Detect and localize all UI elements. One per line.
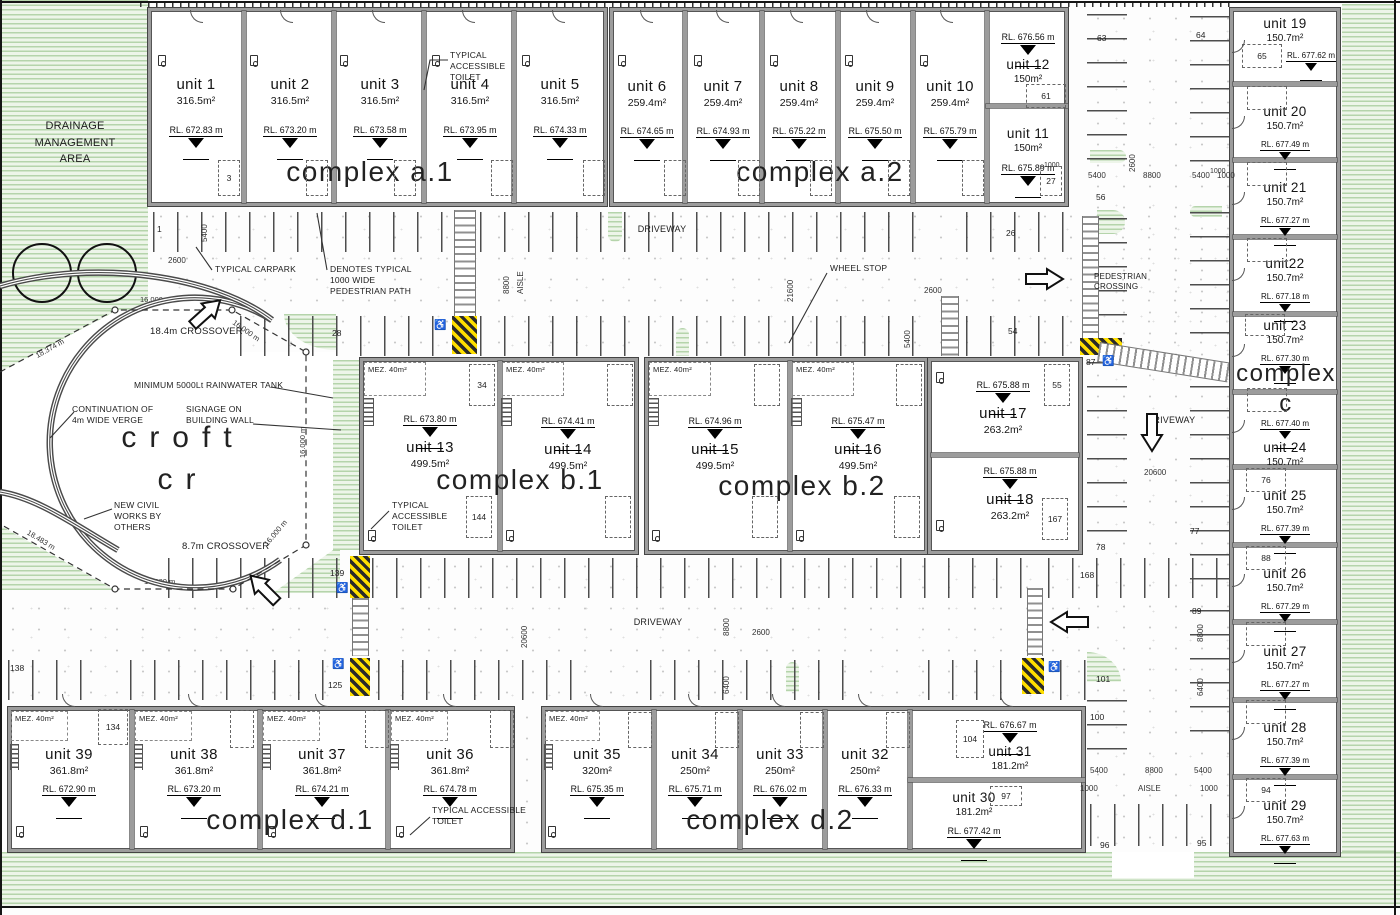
unit-38: unit 38361.8m²RL. 673.20 m [139,746,249,807]
unit-rl: RL. 674.65 m [610,122,684,149]
loading-box: 55 [1044,364,1070,406]
bay-number: 56 [1096,192,1105,202]
loading-box [1247,162,1287,186]
bay-number: 104 [963,734,977,744]
carpark-stalls [1087,14,1127,166]
loading-box [664,160,686,196]
level-marker-icon [1002,479,1018,489]
dim: 1000 [1080,784,1098,793]
bay-number: 134 [106,722,120,732]
unit-rl: RL. 674.96 m [657,412,773,439]
unit-area: 150.7m² [1237,335,1333,348]
unit-name: unit 19 [1237,16,1333,33]
stairs-icon [791,398,802,426]
loading-box [1247,388,1287,412]
unit-rl: RL. 675.35 m [542,780,652,807]
carpark-stalls [650,660,845,700]
toilet-note: TYPICAL ACCESSIBLE TOILET [392,500,478,533]
level-marker-icon [966,839,982,849]
unit-8: unit 8259.4m²RL. 675.22 m [762,78,836,149]
dim: 5400 [200,224,209,242]
level-marker-icon [1020,45,1036,55]
unit-7: unit 7259.4m²RL. 674.93 m [686,78,760,149]
toilet-icon [506,530,514,541]
unit-area: 150.7m² [1237,505,1333,518]
loading-box [886,712,910,748]
unit-area: 250m² [816,765,914,778]
loading-box [394,160,416,196]
loading-box [738,160,760,196]
dim: 5400 [1090,766,1108,775]
unit-10: unit 10259.4m²RL. 675.79 m [913,78,987,149]
dim: 2600 [168,256,186,265]
loading-box [1245,314,1285,336]
loading-box [230,710,254,748]
unit-rl: RL. 676.02 m [731,780,829,807]
unit-rl: RL. 677.27 m [1237,675,1333,700]
dim: 6400 [722,676,731,694]
unit-15: RL. 674.96 munit 15499.5m² [657,410,773,473]
complex-d1-title: complex d.1 [160,804,420,836]
gap-d1-d2 [514,707,542,852]
level-marker-icon [715,139,731,149]
unit-28: unit 28150.7m²RL. 677.39 m [1237,720,1333,776]
unit-area: 361.8m² [395,765,505,778]
mezzanine-label: MEZ. 40m² [267,714,306,723]
unit-area: 259.4m² [610,97,684,110]
unit-area: 361.8m² [267,765,377,778]
unit-name: unit 8 [762,78,836,97]
bottom-notch [1112,852,1194,878]
mezzanine-box: MEZ. 40m² [11,711,68,741]
unit-area: 259.4m² [838,97,912,110]
unit-3: unit 3316.5m²RL. 673.58 m [335,76,425,148]
loading-box [605,496,631,538]
unit-rl: RL. 673.95 m [425,121,515,148]
loading-box [628,712,652,748]
mezzanine-box: MEZ. 40m² [545,711,600,741]
carpark-stalls [612,558,1024,598]
dim: 8800 [722,618,731,636]
bay-number: 96 [1100,840,1109,850]
carpark-stalls [168,558,343,598]
loading-box: 88 [1246,546,1286,570]
level-marker-icon [707,429,723,439]
unit-13: RL. 673.80 munit 13499.5m² [372,408,488,471]
unit-rl: RL. 673.58 m [335,121,425,148]
carpark-stalls [966,316,1076,356]
unit-34: unit 34250m²RL. 675.71 m [646,746,744,807]
unit-35: unit 35320m²RL. 675.35 m [542,746,652,807]
unit-27: unit 27150.7m²RL. 677.27 m [1237,644,1333,700]
dim: 8800 [502,276,511,294]
bay-number: 61 [1041,91,1050,101]
dim: 6400 [1196,678,1205,696]
loading-box [1246,622,1286,646]
mezzanine-box: MEZ. 40m² [364,362,426,396]
pedestrian-crossing-label: PEDESTRIAN CROSSING [1094,272,1156,293]
mezzanine-box: MEZ. 40m² [502,362,564,396]
loading-box [962,160,984,196]
unit-area: 250m² [646,765,744,778]
toilet-icon [548,826,556,837]
unit-area: 150.7m² [1237,661,1333,674]
bay-number: 55 [1052,380,1061,390]
level-marker-icon [791,139,807,149]
wall [130,710,134,849]
stairs-icon [390,744,399,770]
unit-area: 259.4m² [762,97,836,110]
toilet-icon [618,55,626,66]
unit-6: unit 6259.4m²RL. 674.65 m [610,78,684,149]
driveway-label: DRIVEWAY [612,224,712,236]
level-marker-icon [1279,536,1291,544]
unit-name: unit 35 [542,746,652,765]
level-marker-icon [1279,228,1291,236]
wall [931,453,1079,457]
level-marker-icon [282,138,298,148]
civil-note: NEW CIVIL WORKS BY OTHERS [114,500,194,533]
unit-rl: RL. 674.33 m [515,121,605,148]
unit-name: unit 32 [816,746,914,765]
loading-box [1247,86,1287,110]
mezzanine-label: MEZ. 40m² [368,365,407,374]
bay-number: 54 [1008,326,1017,336]
dim: 1000 [1210,168,1226,175]
toilet-icon [432,55,440,66]
unit-19-rl: RL. 677.62 m [1282,44,1340,71]
loading-box [490,710,514,748]
unit-name: unit 6 [610,78,684,97]
dim: 16.000 m [298,427,307,458]
hazard-hatch [350,556,370,598]
unit-16: RL. 675.47 munit 16499.5m² [800,410,916,473]
unit-area: 150.7m² [1237,197,1333,210]
unit-rl: RL. 675.71 m [646,780,744,807]
unit-area: 150.7m² [1237,273,1333,286]
complex-d2-title: complex d.2 [640,804,900,836]
hazard-hatch [350,658,370,696]
wheel-stop-label: WHEEL STOP [830,263,887,274]
unit-12: RL. 676.56 munit 12150m² [990,26,1066,86]
unit-1: unit 1316.5m²RL. 672.83 m [151,76,241,148]
verge-strip [333,360,360,550]
unit-25: unit 25150.7m²RL. 677.39 m [1237,488,1333,544]
bay-number: 26 [1006,228,1015,238]
carpark-note: TYPICAL CARPARK [215,264,296,275]
bay-number: 28 [332,328,341,338]
mezzanine-label: MEZ. 40m² [395,714,434,723]
unit-name: unit 33 [731,746,829,765]
unit-2: unit 2316.5m²RL. 673.20 m [245,76,335,148]
loading-box [752,496,778,538]
unit-name: unit 10 [913,78,987,97]
dim: 2600 [1128,154,1137,172]
stairs-icon [648,398,659,426]
unit-area: 250m² [731,765,829,778]
level-marker-icon [1279,152,1291,160]
carpark-stalls [1190,212,1230,338]
mezzanine-box: MEZ. 40m² [792,362,854,396]
stairs-icon [134,744,143,770]
unit-39: unit 39361.8m²RL. 672.90 m [14,746,124,807]
bay-number: 87 [1086,357,1095,367]
unit-rl: RL. 674.21 m [267,780,377,807]
bay-number: 76 [1261,475,1270,485]
boundary-bottom [0,906,1400,908]
toilet-icon [770,55,778,66]
unit-rl: RL. 672.90 m [14,780,124,807]
level-marker-icon [422,427,438,437]
unit-19: unit 19150.7m² [1237,16,1333,45]
loading-box: 27 [1040,166,1062,196]
level-marker-icon [462,138,478,148]
loading-box: 76 [1246,468,1286,492]
dim: 20600 [1144,468,1166,477]
unit-rl: RL. 675.50 m [838,122,912,149]
bay-number: 77 [1190,526,1199,536]
unit-36: unit 36361.8m²RL. 674.78 m [395,746,505,807]
unit-22: unit22150.7m²RL. 677.18 m [1237,256,1333,312]
accessible-parking-icon: ♿ [332,660,344,670]
unit-name: unit 3 [335,76,425,95]
unit-name: unit 11 [990,126,1066,143]
mezzanine-box: MEZ. 40m² [263,711,320,741]
level-marker-icon [1002,733,1018,743]
unit-area: 361.8m² [139,765,249,778]
bay-number: 63 [1097,33,1106,43]
toilet-icon [268,826,276,837]
dim: 8800 [1143,171,1161,180]
unit-name: unit 36 [395,746,505,765]
pedestrian-crossing [941,296,959,356]
toilet-icon [140,826,148,837]
dim: 2600 [752,628,770,637]
level-marker-icon [1279,768,1291,776]
unit-name: unit 37 [267,746,377,765]
pedestrian-crossing [454,210,476,316]
unit-name: unit 39 [14,746,124,765]
complex-b2-title: complex b.2 [672,470,932,502]
carpark-stalls [1090,804,1230,846]
unit-area: 150.7m² [1237,583,1333,596]
unit-area: 150.7m² [1237,815,1333,828]
dim: 8800 [1196,624,1205,642]
dim: 21600 [786,280,795,302]
dim: 8800 [1145,766,1163,775]
dim: 5400 [903,330,912,348]
accessible-parking-icon: ♿ [336,584,348,594]
level-marker-icon [589,797,605,807]
bay-number: 88 [1261,553,1270,563]
bay-number: 139 [330,568,344,578]
toilet-note: TYPICAL ACCESSIBLE TOILET [432,805,536,827]
dim: 5400 [1194,766,1212,775]
level-marker-icon [552,138,568,148]
bay-number: 89 [1192,606,1201,616]
pedestrian-crossing [352,598,369,656]
dim: AISLE [1138,784,1161,793]
unit-29: unit 29150.7m²RL. 677.63 m [1237,798,1333,854]
unit-rl: RL. 675.88 m [952,462,1068,489]
unit-rl: RL. 677.63 m [1237,829,1333,854]
crossover-label: 18.4m CROSSOVER [150,326,243,338]
path-note: DENOTES TYPICAL 1000 WIDE PEDESTRIAN PAT… [330,264,428,297]
loading-box [888,160,910,196]
carpark-stalls [966,212,1076,252]
rainwater-tank-circle [77,243,137,303]
drainage-label: DRAINAGE MANAGEMENT AREA [20,118,130,168]
toilet-icon [368,530,376,541]
unit-rl: RL. 676.33 m [816,780,914,807]
dim: 20600 [520,626,529,648]
unit-name: unit 1 [151,76,241,95]
hazard-hatch [1022,658,1044,694]
unit-area: 316.5m² [425,95,515,108]
toilet-icon [250,55,258,66]
unit-rl: RL. 677.40 m [1237,414,1333,439]
level-marker-icon [942,139,958,149]
unit-21: unit 21150.7m²RL. 677.27 m [1237,180,1333,236]
unit-rl: RL. 673.80 m [372,410,488,437]
bay-number: 95 [1197,838,1206,848]
verge-strip-right [1342,4,1396,908]
unit-20: unit 20150.7m²RL. 677.49 m [1237,104,1333,160]
stairs-icon [363,398,374,426]
complex-a1-title: complex a.1 [240,156,500,188]
unit-area: 320m² [542,765,652,778]
unit-rl: RL. 677.39 m [1237,751,1333,776]
unit-rl: RL. 677.49 m [1237,135,1333,160]
dim: AISLE [516,271,525,294]
level-marker-icon [1279,846,1291,854]
unit-rl: RL. 672.83 m [151,121,241,148]
hazard-hatch [452,316,477,354]
bay-number: 138 [10,663,24,673]
unit-32: unit 32250m²RL. 676.33 m [816,746,914,807]
rainwater-note: MINIMUM 5000Lt RAINWATER TANK [134,380,283,391]
carpark-stalls [378,660,593,700]
unit-area: 361.8m² [14,765,124,778]
toilet-icon [920,55,928,66]
level-marker-icon [560,429,576,439]
unit-name: unit 7 [686,78,760,97]
carpark-stalls [1087,700,1127,758]
road-name: cr [128,460,238,499]
dim: 5400 [1088,171,1106,180]
road-name: croft [118,418,248,457]
mezzanine-label: MEZ. 40m² [506,365,545,374]
stairs-icon [544,744,553,770]
toilet-icon [16,826,24,837]
loading-box: 3 [218,160,240,196]
unit-24: RL. 677.40 munit 24150.7m² [1237,412,1333,469]
loading-box: 104 [956,720,984,758]
stairs-icon [10,744,19,770]
unit-rl: RL. 673.20 m [245,121,335,148]
unit-area: 316.5m² [335,95,425,108]
bay-number: 101 [1096,674,1110,684]
bay-number: 168 [1080,570,1094,580]
dim: 5400 [1192,171,1210,180]
unit-rl: RL. 674.78 m [395,780,505,807]
complex-b1-title: complex b.1 [390,464,650,496]
carpark-stalls [240,316,450,356]
level-marker-icon [188,138,204,148]
accessible-parking-icon: ♿ [1048,663,1060,673]
toilet-icon [694,55,702,66]
mezzanine-label: MEZ. 40m² [549,714,588,723]
bay-number: 3 [227,173,232,183]
mezzanine-label: MEZ. 40m² [139,714,178,723]
loading-box [583,160,605,196]
toilet-icon [936,520,944,531]
pedestrian-crossing [1027,588,1043,656]
bay-number: 100 [1090,712,1104,722]
site-plan: unit 1316.5m²RL. 672.83 m unit 2316.5m²R… [0,0,1400,915]
unit-rl: RL. 677.18 m [1237,287,1333,312]
unit-name: unit 27 [1237,644,1333,661]
unit-area: 150m² [990,143,1066,156]
unit-name: unit 2 [245,76,335,95]
loading-box [894,496,920,538]
unit-rl: RL. 675.79 m [913,122,987,149]
toilet-icon [845,55,853,66]
stairs-icon [262,744,271,770]
unit-rl: RL. 677.27 m [1237,211,1333,236]
unit-33: unit 33250m²RL. 676.02 m [731,746,829,807]
unit-rl: RL. 677.39 m [1237,519,1333,544]
level-marker-icon [1279,304,1291,312]
complex-c-title: complex [1234,360,1338,388]
loading-box [715,712,739,748]
stairs-icon [501,398,512,426]
loading-box: 61 [1026,84,1066,108]
toilet-icon [340,55,348,66]
boundary-left [0,0,2,915]
dim: 16.000 m [144,577,175,586]
level-marker-icon [372,138,388,148]
carpark-stalls [130,660,343,700]
loading-box [607,364,633,406]
mezzanine-box: MEZ. 40m² [391,711,448,741]
bay-number: 167 [1048,514,1062,524]
driveway-label: DRIVEWAY [1126,415,1216,427]
unit-area: 181.2m² [928,807,1020,820]
unit-rl: RL. 674.93 m [686,122,760,149]
unit-rl: RL. 673.20 m [139,780,249,807]
loading-box [491,160,513,196]
unit-area: 263.2m² [945,424,1061,437]
level-marker-icon [1279,431,1291,439]
unit-4: unit 4316.5m²RL. 673.95 m [425,76,515,148]
level-marker-icon [61,797,77,807]
dim: 1000 [1044,162,1060,169]
unit-rl: RL. 677.62 m [1282,46,1340,71]
loading-box [754,364,780,406]
unit-rl: RL. 677.29 m [1237,597,1333,622]
loading-box [896,364,922,406]
dim: 2600 [924,286,942,295]
unit-rl: RL. 675.47 m [800,412,916,439]
accessible-parking-icon: ♿ [1102,357,1114,367]
carpark-stalls [372,558,594,598]
loading-box: 34 [469,364,495,406]
toilet-icon [396,826,404,837]
bay-number: 64 [1196,30,1205,40]
mezzanine-label: MEZ. 40m² [796,365,835,374]
wall [908,778,1085,782]
